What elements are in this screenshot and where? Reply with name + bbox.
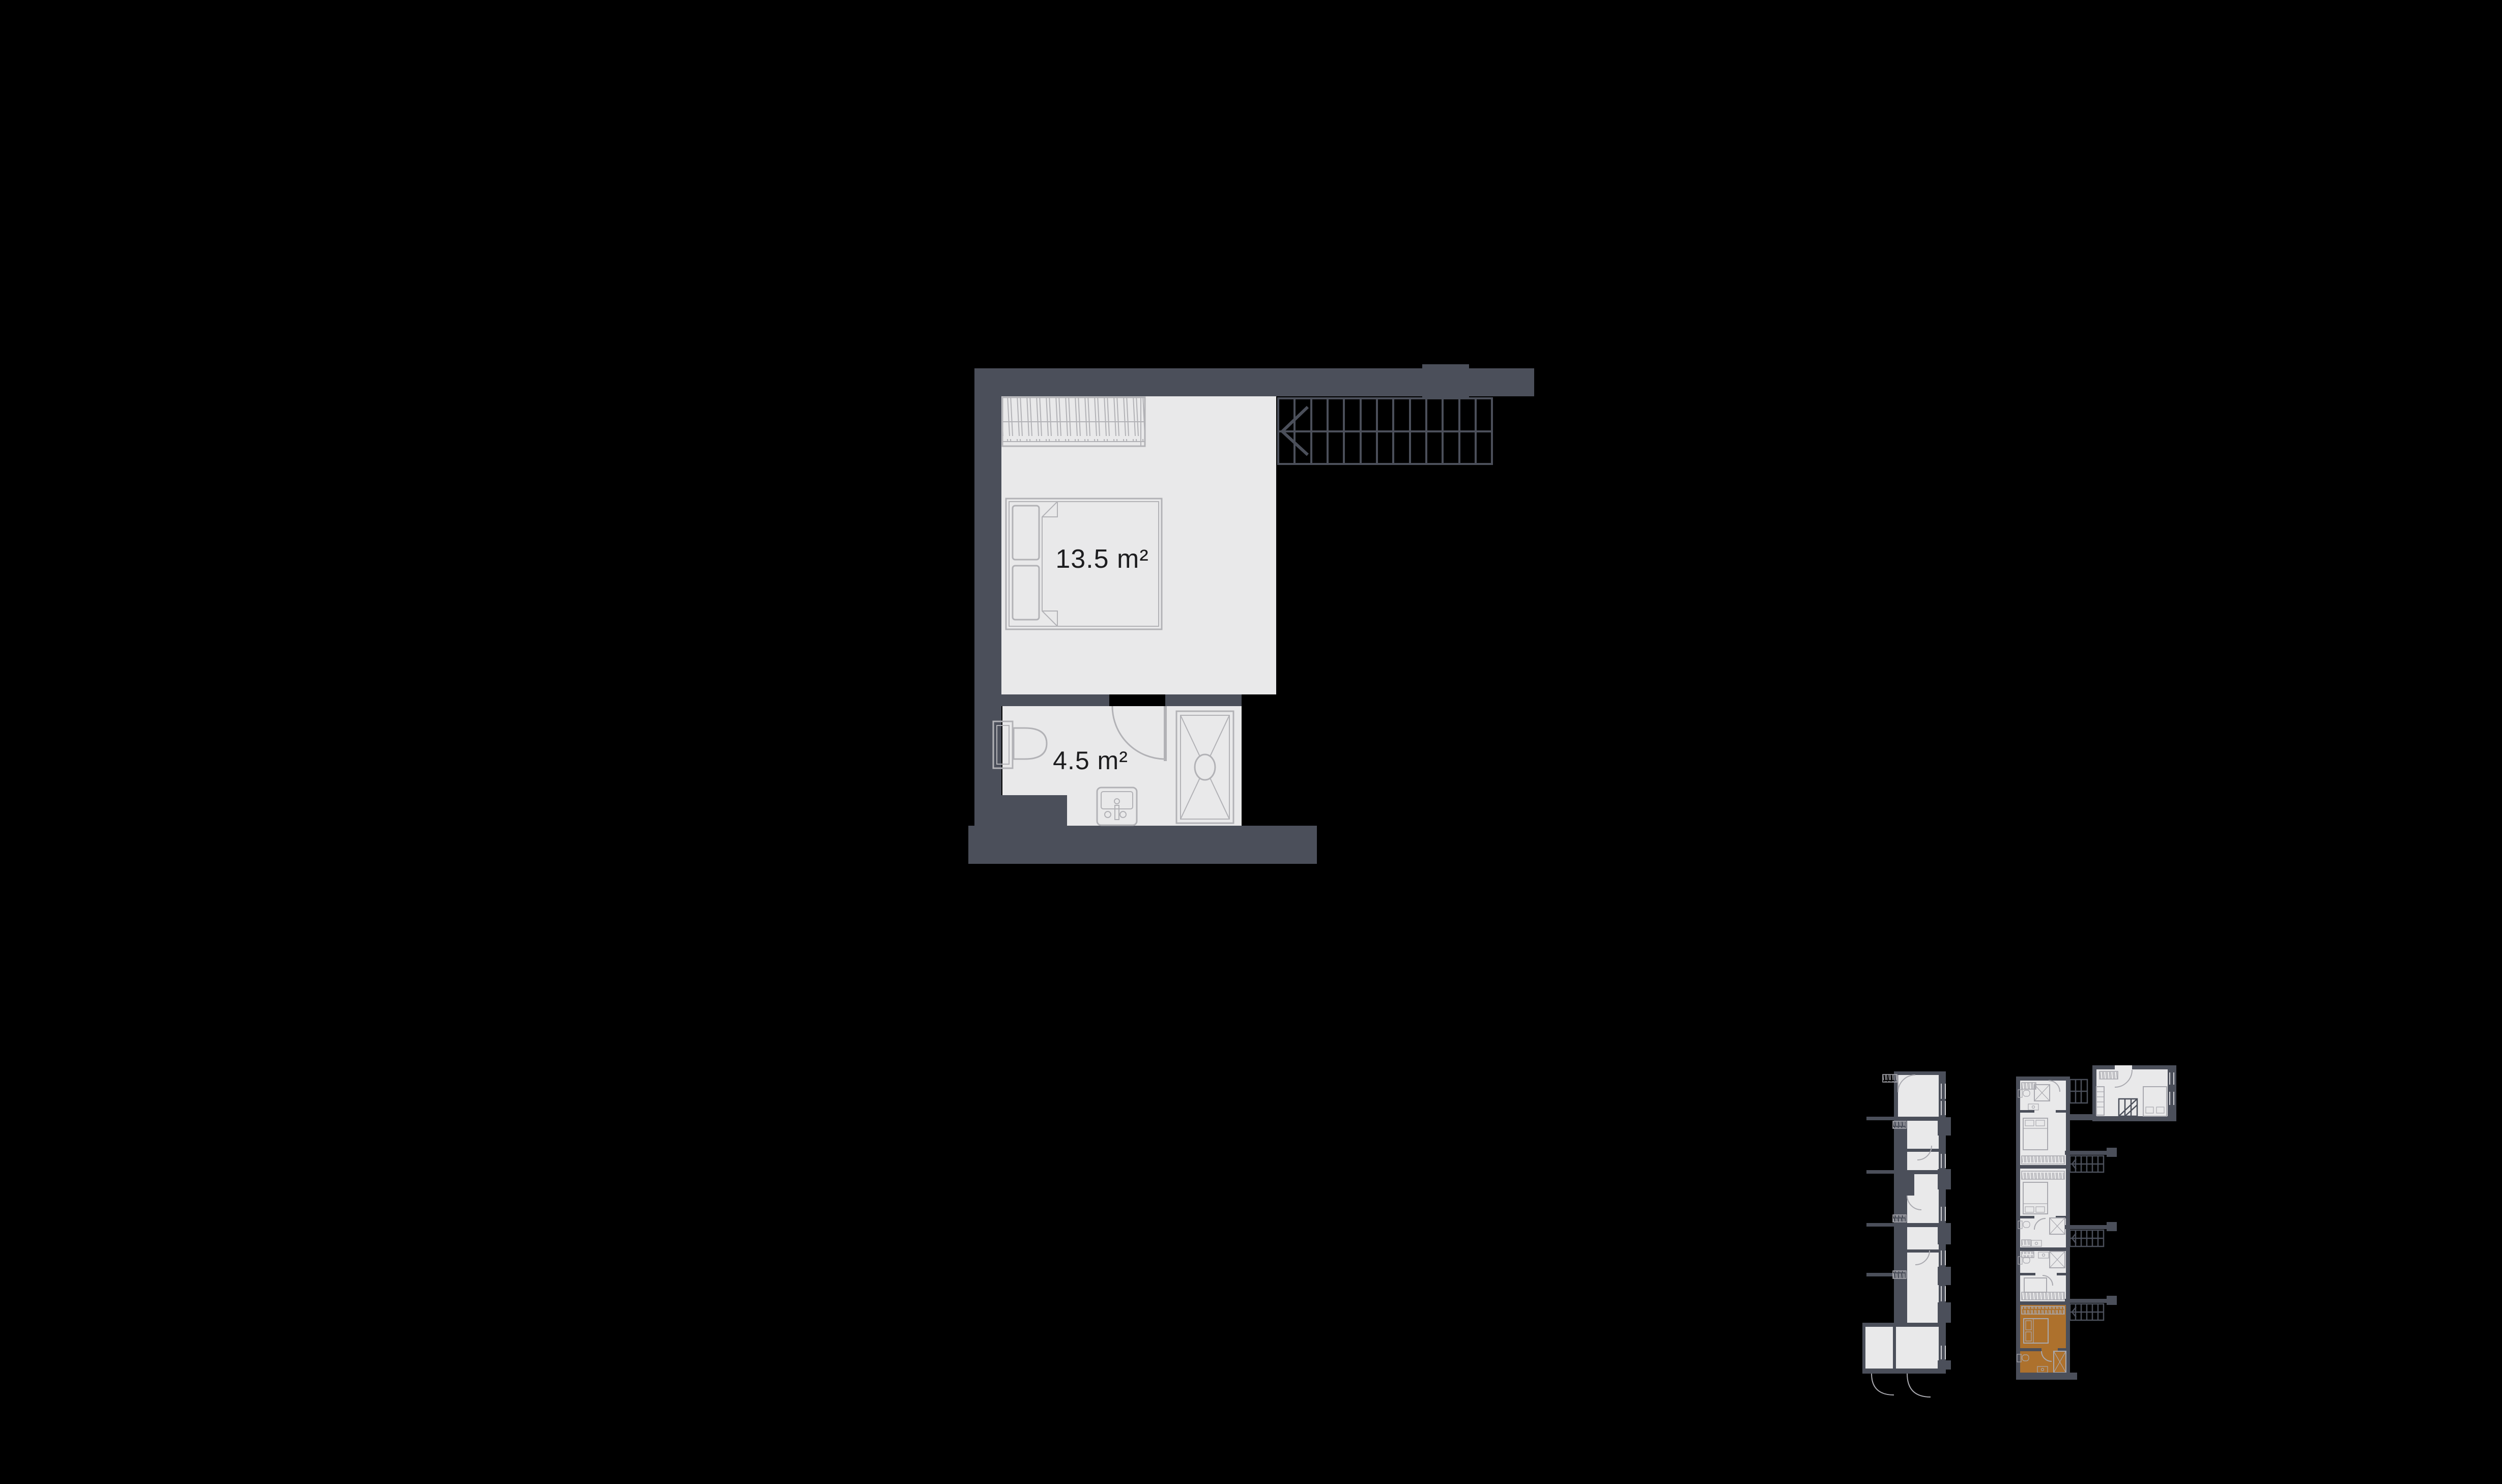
mini-room xyxy=(1907,1227,1939,1249)
wall-top-notch xyxy=(1422,364,1469,398)
mini-strip-floor xyxy=(2020,1081,2066,1305)
mini-room xyxy=(1865,1327,1893,1369)
page-root: { "colors": { "background": "#000000", "… xyxy=(0,0,2502,1484)
mini-stairs-1 xyxy=(2070,1156,2104,1172)
mini-stairs-2 xyxy=(2070,1230,2104,1246)
mini-room xyxy=(1898,1075,1939,1117)
mini-room xyxy=(1896,1327,1939,1369)
mini-top-stairs xyxy=(2070,1080,2087,1103)
mini-plan-left-building[interactable] xyxy=(1856,1063,1963,1409)
mini-plan-right-building[interactable] xyxy=(2012,1061,2183,1387)
wall-divider-right xyxy=(1165,694,1242,706)
wall-divider-left xyxy=(1001,694,1109,706)
mini-left-structure[interactable] xyxy=(1862,1071,1951,1397)
bathroom-area-label: 4.5 m² xyxy=(1053,746,1128,775)
wall-bottom-left-block xyxy=(974,795,1067,826)
wall-bottom-band xyxy=(968,826,1317,864)
mini-stairs-3 xyxy=(2070,1304,2104,1320)
mini-room xyxy=(1907,1196,1939,1223)
mini-bottom-band xyxy=(2016,1373,2077,1380)
staircase xyxy=(1278,398,1492,464)
mini-room xyxy=(1914,1174,1939,1196)
mini-room xyxy=(1907,1152,1939,1170)
mini-room xyxy=(1907,1121,1939,1149)
main-floor-plan: 13.5 m² 4.5 m² xyxy=(962,360,1542,869)
wardrobe xyxy=(1002,397,1145,446)
bedroom-area-label: 13.5 m² xyxy=(1055,544,1148,574)
wall-left xyxy=(974,396,1001,826)
